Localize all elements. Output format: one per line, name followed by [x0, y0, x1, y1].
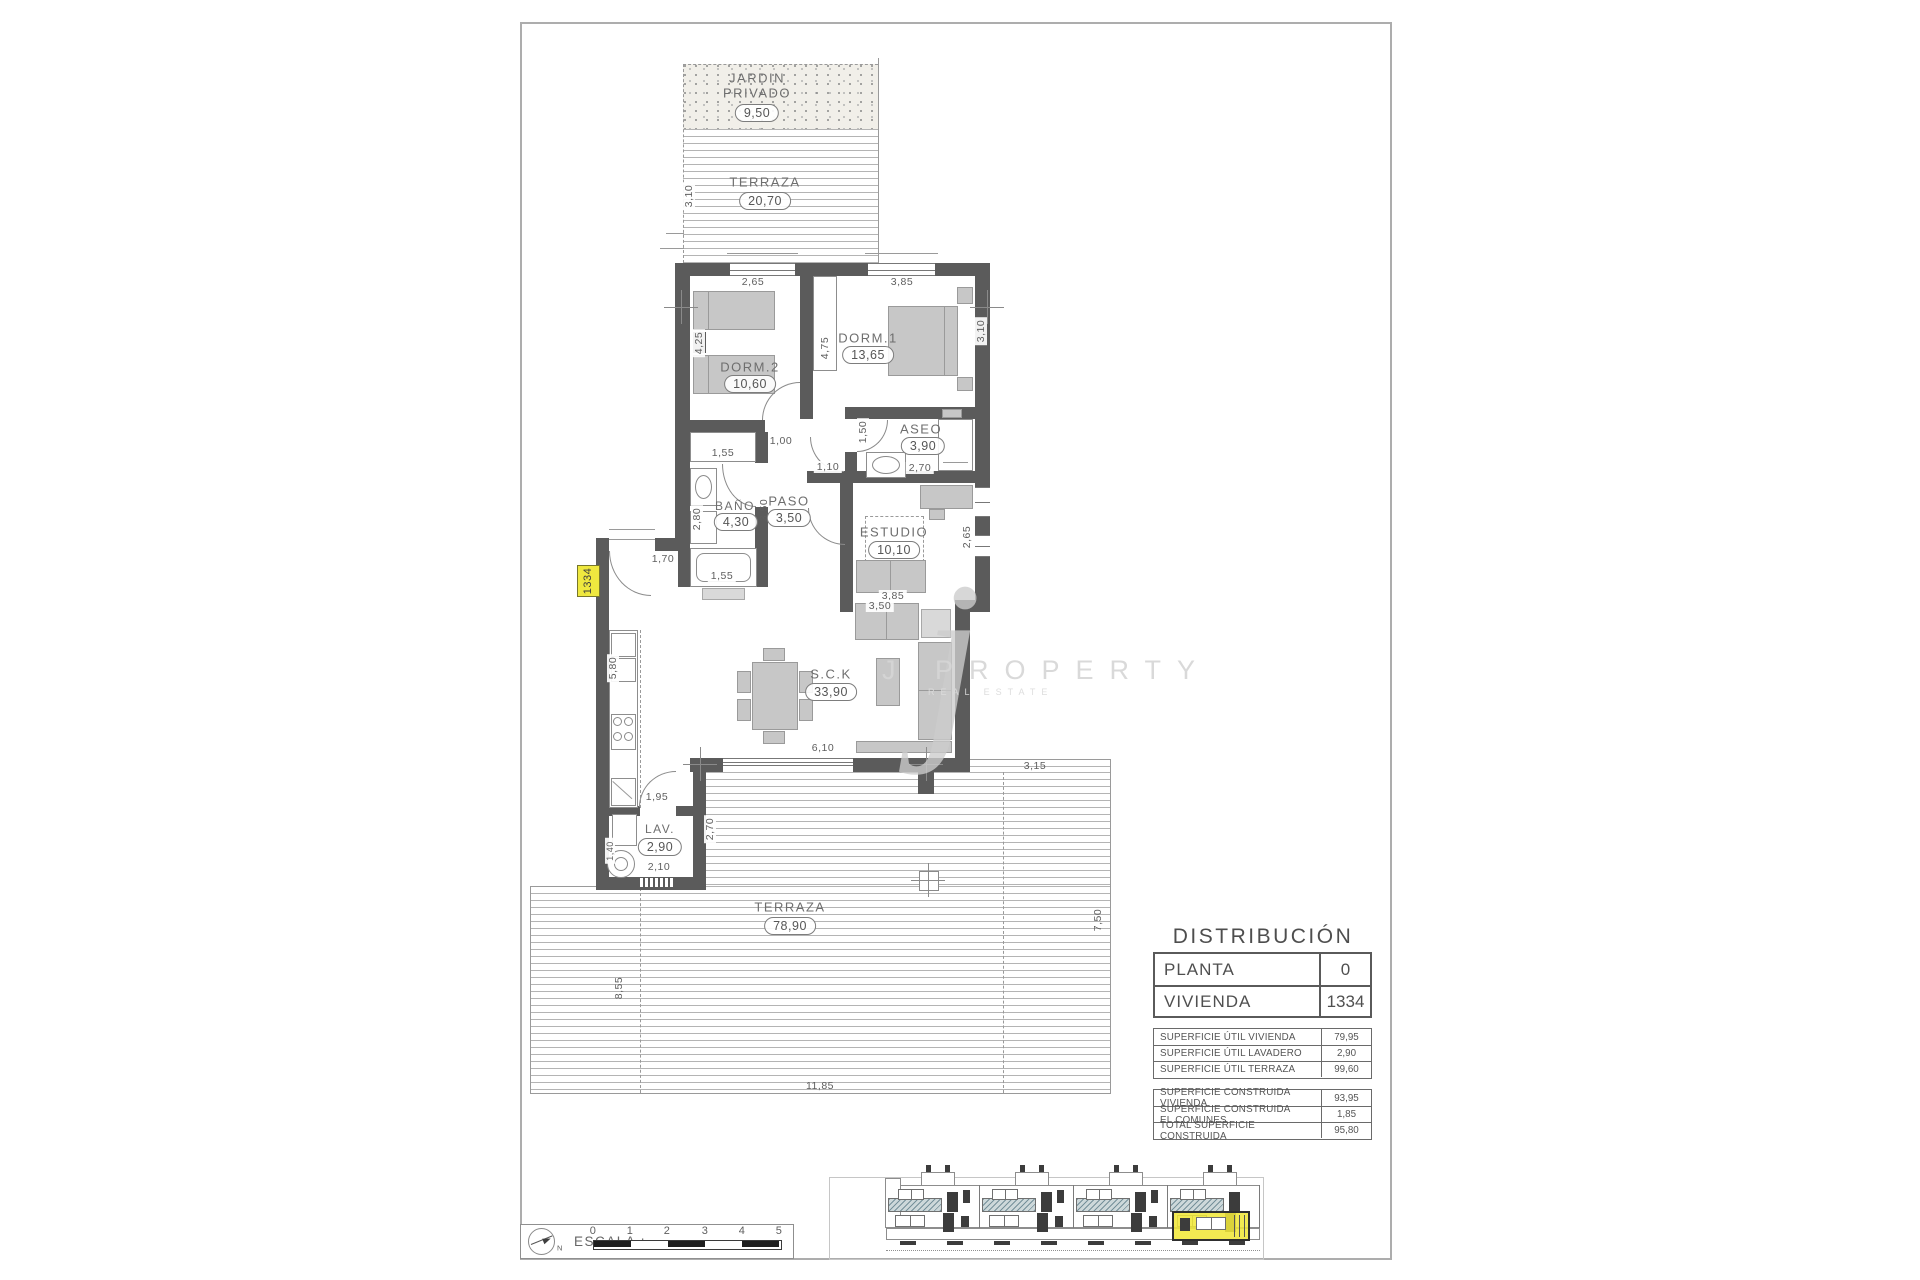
dim-label: 4,75	[819, 334, 831, 362]
watermark-brand: J PROPERTY	[882, 655, 1211, 686]
chimney	[926, 1165, 931, 1172]
elevation-window-dark	[963, 1190, 970, 1203]
area-badge-estudio: 10,10	[868, 541, 920, 559]
dim-label: 1,00	[770, 435, 792, 447]
dim-tick	[660, 248, 684, 249]
area-badge-dorm2: 10,60	[724, 375, 776, 393]
base-foot	[1041, 1241, 1057, 1245]
elevation-window-dark	[1055, 1216, 1063, 1227]
built-surface-table: SUPERFICIE CONSTRUIDA VIVIENDA 93,95 SUP…	[1153, 1089, 1372, 1140]
stair-tower	[1015, 1172, 1049, 1186]
elevation-door	[943, 1213, 954, 1232]
row-value: 99,60	[1321, 1062, 1371, 1077]
dim-label: 4,25	[693, 329, 705, 357]
base-foot	[1135, 1241, 1151, 1245]
wall	[840, 483, 853, 612]
axis-cross-icon	[911, 863, 945, 897]
dining-table	[752, 662, 798, 730]
chair	[763, 648, 785, 661]
module-divider	[979, 1185, 980, 1228]
dim-label: 3,15	[1024, 760, 1046, 772]
elevation-window-dark	[961, 1216, 969, 1227]
base-foot	[900, 1241, 916, 1245]
north-label: N	[557, 1244, 563, 1253]
vent-grille	[638, 878, 675, 887]
chair	[763, 731, 785, 744]
radiator	[942, 409, 962, 418]
window	[975, 487, 990, 517]
chimney	[945, 1165, 950, 1172]
scale-tick: 4	[739, 1225, 746, 1237]
sofa-cushion-line	[890, 561, 891, 592]
chair	[737, 671, 751, 693]
scale-tick: 3	[702, 1225, 709, 1237]
table-row: VIVIENDA 1334	[1155, 985, 1370, 1016]
unit-line	[1244, 1215, 1245, 1237]
scale-segment	[668, 1241, 705, 1247]
wall	[690, 420, 765, 432]
dim-label: 3,10	[683, 182, 695, 210]
bed-double	[888, 306, 958, 376]
scale-bar	[593, 1240, 782, 1250]
unit-line	[1234, 1215, 1235, 1237]
area-badge-garden: 9,50	[735, 104, 779, 122]
base-foot	[994, 1241, 1010, 1245]
burner	[613, 717, 622, 726]
terrace-deck-hatch	[706, 772, 1110, 886]
dim-label: 2,70	[906, 462, 934, 474]
vivienda-value: 1334	[1319, 987, 1370, 1016]
dim-label: 3,50	[866, 600, 894, 612]
distribution-title: DISTRIBUCIÓN	[1173, 925, 1354, 949]
dim-label: 5,80	[607, 654, 619, 682]
table-row: PLANTA 0	[1155, 954, 1370, 985]
area-badge-sck: 33,90	[805, 683, 857, 701]
dim-label: 7,50	[1092, 909, 1104, 931]
chair	[799, 699, 813, 721]
window	[868, 263, 935, 276]
row-label: SUPERFICIE ÚTIL LAVADERO	[1154, 1046, 1321, 1061]
room-label-dorm1: DORM.1	[838, 331, 898, 346]
elevation-door	[1229, 1192, 1240, 1212]
bedside-table	[957, 377, 973, 391]
dim-label: 3,50	[758, 499, 770, 521]
ground-line	[886, 1250, 1260, 1251]
useful-surface-table: SUPERFICIE ÚTIL VIVIENDA 79,95 SUPERFICI…	[1153, 1028, 1372, 1079]
balcony-railing	[888, 1198, 942, 1212]
base-foot	[947, 1241, 963, 1245]
washing-machine-drum	[614, 857, 628, 871]
burner	[624, 732, 633, 741]
axis-cross-icon	[664, 290, 698, 324]
area-badge-dorm1: 13,65	[842, 346, 894, 364]
base-foot	[1182, 1241, 1198, 1245]
elevation-window	[895, 1215, 925, 1227]
bed-single	[693, 291, 775, 330]
wall	[676, 806, 693, 816]
dim-label: 6,10	[809, 742, 837, 754]
dim-label: 2,70	[704, 815, 716, 843]
dim-label: 2,65	[742, 276, 764, 288]
elevation-window-dark	[1151, 1190, 1158, 1203]
area-badge-paso: 3,50	[767, 509, 811, 527]
row-value: 95,80	[1321, 1123, 1371, 1138]
table-row: TOTAL SUPERFICIE CONSTRUIDA 95,80	[1154, 1122, 1371, 1138]
elevation-window-dark	[1149, 1216, 1157, 1227]
pillow-line	[708, 356, 709, 393]
elevation-window	[992, 1189, 1018, 1200]
unit-number-tag-text: 1334	[583, 568, 595, 594]
area-badge-aseo: 3,90	[901, 437, 945, 455]
planta-value: 0	[1319, 954, 1370, 985]
dim-label: 11,85	[806, 1080, 834, 1092]
dim-label: 2,10	[648, 861, 670, 873]
dim-label: 1,10	[814, 461, 842, 473]
elevation-door	[1131, 1213, 1142, 1232]
laundry-counter	[612, 814, 637, 846]
unit-door	[1180, 1218, 1190, 1231]
window	[730, 263, 795, 276]
unit-line	[1239, 1215, 1240, 1237]
chimney	[1208, 1165, 1213, 1172]
area-badge-terrace-main: 78,90	[764, 917, 816, 935]
balcony-railing	[1170, 1198, 1224, 1212]
terrace-edge	[530, 1093, 1111, 1094]
sliding-glass-door	[723, 758, 853, 766]
terrace-edge	[530, 886, 531, 1093]
room-label-terrace-main: TERRAZA	[754, 900, 825, 915]
elevation-window	[1180, 1189, 1206, 1200]
chair	[737, 699, 751, 721]
wall	[800, 407, 813, 419]
row-label: TOTAL SUPERFICIE CONSTRUIDA	[1154, 1123, 1321, 1138]
terrace-divider-dashed	[640, 888, 641, 1093]
elevation-door	[1041, 1192, 1052, 1212]
dim-label: 2,80	[691, 505, 703, 533]
desk-chair	[929, 509, 945, 520]
area-badge-bano: 4,30	[714, 513, 758, 531]
table-row: SUPERFICIE ÚTIL LAVADERO 2,90	[1154, 1045, 1371, 1061]
dim-label: 1,95	[646, 791, 668, 803]
burner	[613, 732, 622, 741]
wall	[675, 263, 990, 276]
kitchen-overhead-dashed	[640, 630, 641, 808]
row-value: 93,95	[1321, 1090, 1371, 1106]
room-label-garden: JARDIN	[729, 71, 785, 86]
scale-segment	[594, 1241, 631, 1247]
unit-window	[1196, 1217, 1226, 1230]
chimney	[1227, 1165, 1232, 1172]
dim-label: 1,50	[857, 418, 869, 446]
dim-label: 1,40	[605, 838, 615, 864]
unit-number-tag: 1334	[577, 565, 600, 597]
row-value: 2,90	[1321, 1046, 1371, 1061]
entrance-sill	[609, 529, 655, 540]
elevation-door	[1135, 1192, 1146, 1212]
doormat	[702, 588, 745, 600]
stair-tower	[921, 1172, 955, 1186]
elevation-window-dark	[1057, 1190, 1064, 1203]
axis-cross-icon	[683, 747, 717, 781]
room-label-paso: PASO	[768, 494, 809, 509]
shower-tray-line	[943, 462, 968, 463]
plot-boundary-line	[878, 58, 879, 263]
chimney	[1114, 1165, 1119, 1172]
plot-boundary-dashed	[683, 64, 878, 65]
area-badge-terrace-top: 20,70	[739, 192, 791, 210]
base-foot	[1229, 1241, 1245, 1245]
balcony-railing	[1076, 1198, 1130, 1212]
base-foot	[1088, 1241, 1104, 1245]
pillow-line	[708, 292, 709, 329]
washbasin-bowl	[872, 456, 900, 474]
dim-label: 8,55	[613, 977, 625, 999]
dim-label: 1,70	[652, 553, 674, 565]
sofa	[856, 560, 926, 593]
elevation-window	[1086, 1189, 1112, 1200]
room-label-estudio: ESTUDIO	[860, 525, 928, 540]
table-row: SUPERFICIE ÚTIL VIVIENDA 79,95	[1154, 1029, 1371, 1045]
chimney	[1020, 1165, 1025, 1172]
scale-tick: 2	[664, 1225, 671, 1237]
room-label-garden: PRIVADO	[723, 86, 791, 101]
watermark-tagline: REAL ESTATE	[928, 687, 1053, 697]
room-label-bano: BAÑO	[715, 499, 755, 513]
terrace-edge	[1110, 759, 1111, 1094]
table-row: SUPERFICIE ÚTIL TERRAZA 99,60	[1154, 1061, 1371, 1077]
planta-label: PLANTA	[1155, 954, 1319, 985]
dim-label: 3,85	[891, 276, 913, 288]
scale-segment	[742, 1241, 779, 1247]
row-value: 1,85	[1321, 1107, 1371, 1122]
elevation-window	[989, 1215, 1019, 1227]
elevation-door	[947, 1192, 958, 1212]
burner	[624, 717, 633, 726]
wall	[655, 538, 690, 551]
row-label: SUPERFICIE ÚTIL TERRAZA	[1154, 1062, 1321, 1077]
vivienda-label: VIVIENDA	[1155, 987, 1319, 1016]
dim-label: 3,10	[975, 317, 987, 345]
stair-tower	[1203, 1172, 1237, 1186]
room-label-sck: S.C.K	[810, 667, 851, 682]
dim-label: 1,55	[708, 570, 736, 582]
pillow-line	[944, 307, 945, 375]
room-label-terrace-top: TERRAZA	[729, 175, 800, 190]
stair-tower	[1109, 1172, 1143, 1186]
module-divider	[1259, 1185, 1260, 1228]
row-label: SUPERFICIE ÚTIL VIVIENDA	[1154, 1029, 1321, 1045]
scale-tick: 5	[776, 1225, 783, 1237]
dim-tick	[666, 233, 684, 234]
module-divider	[1167, 1185, 1168, 1228]
elevation-window	[898, 1189, 924, 1200]
chimney	[1133, 1165, 1138, 1172]
row-value: 79,95	[1321, 1029, 1371, 1045]
washbasin-bowl	[695, 475, 712, 499]
area-badge-lav: 2,90	[638, 838, 682, 856]
chimney	[1039, 1165, 1044, 1172]
balcony-railing	[982, 1198, 1036, 1212]
terrace-divider-dashed	[1003, 772, 1004, 1093]
module-divider	[1073, 1185, 1074, 1228]
room-label-dorm2: DORM.2	[720, 360, 780, 375]
wall	[800, 276, 813, 419]
elevation-door	[1037, 1213, 1048, 1232]
room-label-lav: LAV.	[645, 822, 675, 836]
room-label-aseo: ASEO	[900, 422, 942, 437]
distribution-table: PLANTA 0 VIVIENDA 1334	[1153, 952, 1372, 1018]
dim-label: 1,55	[709, 447, 737, 459]
plan-sheet-page: JARDIN PRIVADO 9,50 TERRAZA 20,70 DORM.2…	[0, 0, 1920, 1280]
desk	[920, 485, 973, 509]
wall	[755, 432, 768, 463]
elevation-window	[1083, 1215, 1113, 1227]
